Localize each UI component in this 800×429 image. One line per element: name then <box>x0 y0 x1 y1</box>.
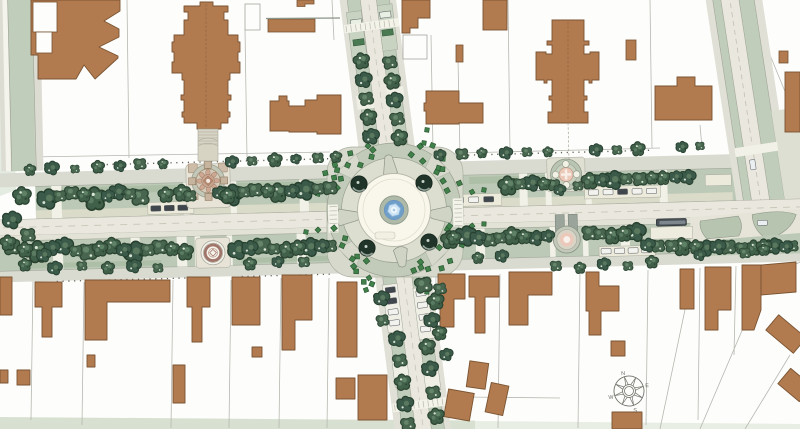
svg-text:N: N <box>621 371 625 377</box>
